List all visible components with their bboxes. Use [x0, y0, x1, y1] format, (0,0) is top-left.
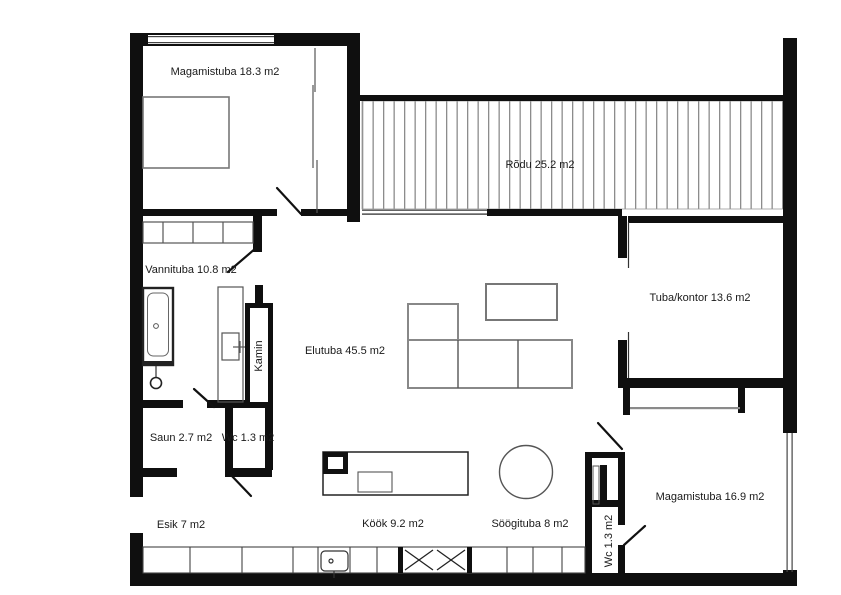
bedroom2-door — [598, 423, 622, 449]
bed — [143, 97, 229, 168]
sauna-door — [194, 389, 214, 407]
floor-plan: Magamistuba 18.3 m2Rõdu 25.2 m2Vannituba… — [0, 0, 841, 595]
hob — [326, 455, 346, 472]
bathroom-vanity — [218, 287, 247, 402]
kitchen-island — [323, 452, 468, 495]
balcony-sliding-door — [362, 209, 487, 216]
bathroom-cabinets — [143, 222, 253, 243]
floor-drain — [151, 378, 162, 389]
wc1-door — [230, 474, 251, 496]
coffee-table — [486, 284, 557, 320]
fireplace-box — [248, 306, 271, 405]
sofa — [408, 304, 572, 388]
wc2-door — [624, 526, 645, 545]
bedroom1-window — [148, 35, 274, 44]
bedroom1-door — [277, 188, 301, 214]
floor-plan-drawing — [0, 0, 841, 595]
balcony-decking — [362, 101, 783, 209]
bathroom-door — [228, 248, 256, 272]
bathtub — [143, 288, 173, 389]
dining-table — [500, 446, 553, 499]
kitchen-counter — [143, 547, 585, 578]
bedroom2-window — [783, 433, 797, 572]
appliance-symbols — [405, 550, 465, 570]
